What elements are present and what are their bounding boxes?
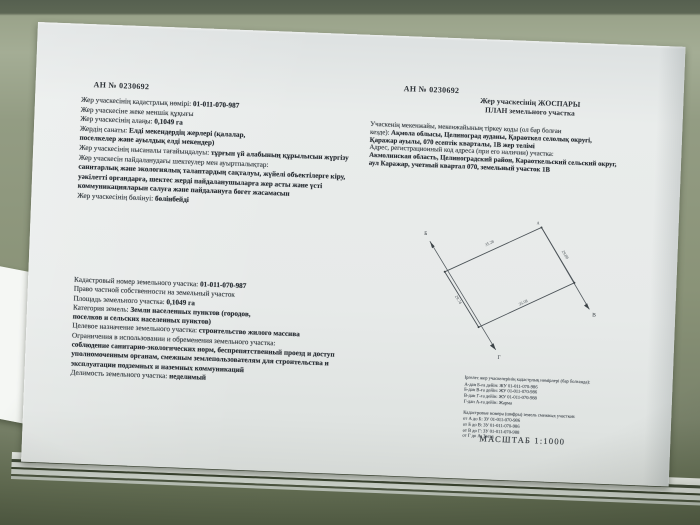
corner-letter-right: В	[592, 312, 596, 318]
document-number-left: АН № 0230692	[93, 80, 149, 91]
parcel-boundary-drawing: Б А В Г 35.28 29.88 35.08 29.74	[411, 213, 617, 379]
land-plot-document-page: АН № 0230692 Жер учаскесінің кадастрлық …	[21, 22, 685, 487]
direction-arrowhead-right	[584, 303, 590, 309]
kazakh-parcel-info-block: Жер учаскесінің кадастрлық нөмірі: 01-01…	[77, 96, 401, 214]
boundary-extension-line	[426, 241, 500, 350]
corner-letter-bottom: Г	[497, 355, 500, 361]
parcel-address-block: Учаскенің мекенжайы, мекенжайының тіркеу…	[369, 121, 686, 180]
dimension-bottom-edge: 35.08	[518, 298, 529, 306]
direction-arrowhead-bottom	[490, 343, 496, 350]
corner-letter-upper-left: Б	[424, 231, 427, 237]
direction-arrowhead-upper-left	[430, 241, 435, 248]
dimension-left-edge: 29.74	[454, 294, 464, 305]
dimension-right-edge: 29.88	[561, 249, 570, 260]
dimension-top-edge: 35.28	[484, 239, 495, 247]
parcel-polygon	[443, 224, 577, 331]
russian-parcel-info-block: Кадастровый номер земельного участка: 01…	[70, 276, 394, 390]
plan-title: Жер учаскесінің ЖОСПАРЫ ПЛАН земельного …	[395, 93, 665, 121]
corner-letter-top: А	[537, 220, 540, 225]
